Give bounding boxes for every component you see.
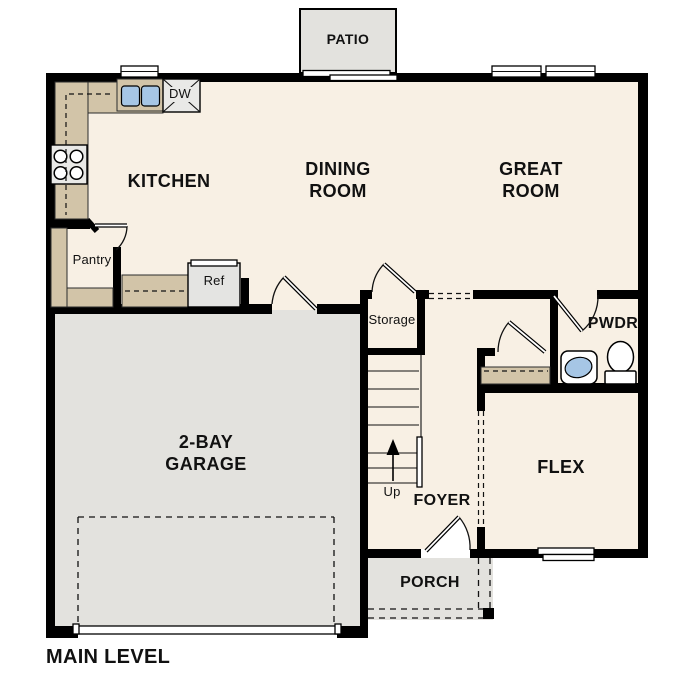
stove	[51, 145, 87, 184]
garage-label: 2-BAY GARAGE	[165, 431, 246, 475]
dishwasher-label: DW	[168, 87, 192, 102]
foyer-label: FOYER	[413, 492, 470, 510]
patio-label: PATIO	[327, 32, 370, 48]
dining-room-label: DINING ROOM	[305, 158, 370, 202]
stair-rail	[417, 437, 422, 487]
kitchen-window	[121, 66, 158, 77]
toilet	[605, 342, 636, 385]
pantry-label: Pantry	[73, 253, 112, 268]
flex-label: FLEX	[537, 456, 585, 478]
powder-room-label: PWDR	[588, 315, 638, 333]
porch-post	[483, 608, 494, 619]
plan-title: MAIN LEVEL	[46, 646, 170, 668]
great-room-label: GREAT ROOM	[499, 158, 563, 202]
floor-plan: PATIO KITCHEN DINING ROOM GREAT ROOM Pan…	[0, 0, 687, 687]
floor-plan-drawing	[0, 0, 687, 687]
storage-label: Storage	[369, 313, 416, 328]
kitchen-sink	[117, 79, 163, 111]
powder-vanity-sink	[561, 351, 597, 384]
porch-label: PORCH	[400, 574, 460, 592]
closet-shelf	[481, 367, 550, 384]
refrigerator-label: Ref	[204, 274, 225, 289]
up-label: Up	[383, 485, 400, 500]
kitchen-label: KITCHEN	[128, 170, 211, 192]
flex-window	[538, 548, 594, 561]
garage-door	[73, 624, 341, 634]
